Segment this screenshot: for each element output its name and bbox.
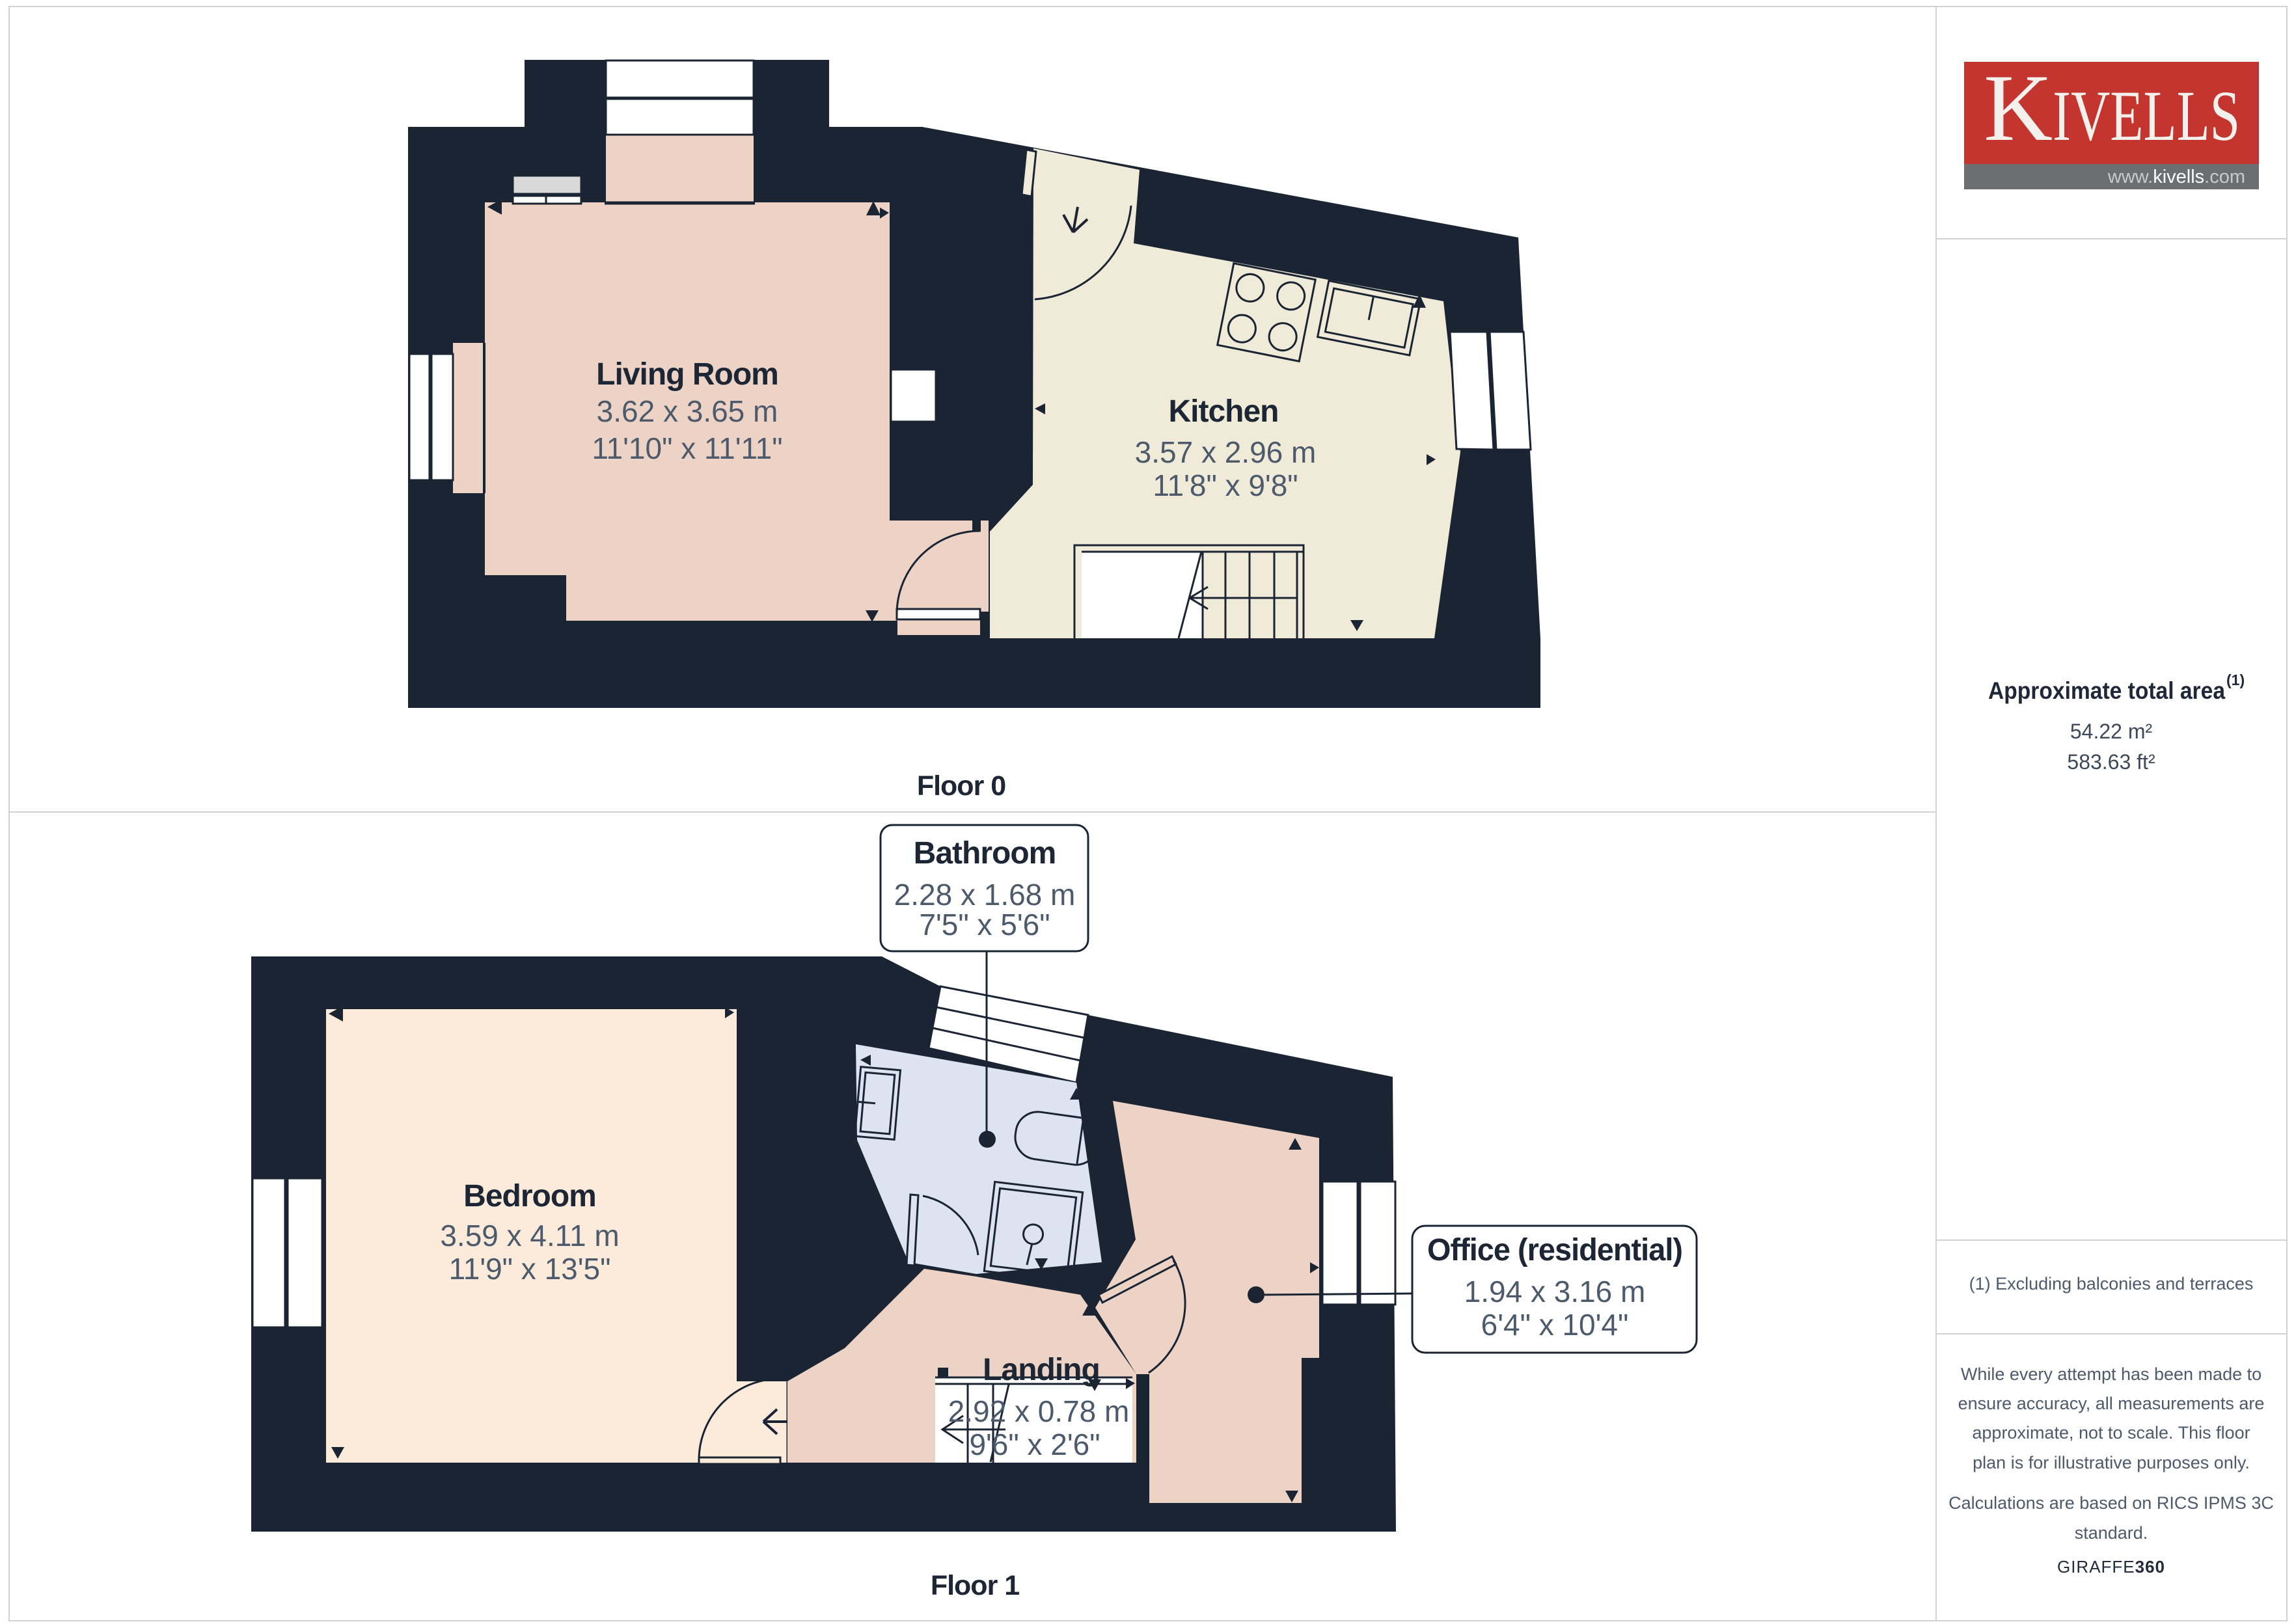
svg-text:11'10" x 11'11": 11'10" x 11'11" — [592, 431, 782, 465]
svg-text:Living Room: Living Room — [596, 357, 778, 392]
svg-text:(1): (1) — [2226, 671, 2245, 688]
svg-text:(1) Excluding balconies and te: (1) Excluding balconies and terraces — [1969, 1274, 2254, 1293]
svg-text:ensure accuracy, all measureme: ensure accuracy, all measurements are — [1958, 1394, 2265, 1413]
svg-text:2.28 x 1.68 m: 2.28 x 1.68 m — [894, 878, 1076, 912]
svg-text:9'6" x 2'6": 9'6" x 2'6" — [969, 1428, 1100, 1461]
svg-text:Landing: Landing — [983, 1353, 1100, 1387]
svg-text:www.kivells.com: www.kivells.com — [2107, 167, 2245, 187]
svg-text:54.22 m²: 54.22 m² — [2070, 720, 2153, 743]
svg-text:11'8" x 9'8": 11'8" x 9'8" — [1153, 468, 1298, 502]
svg-text:standard.: standard. — [2075, 1523, 2148, 1543]
svg-text:Bedroom: Bedroom — [463, 1179, 596, 1213]
svg-text:583.63 ft²: 583.63 ft² — [2067, 750, 2155, 774]
svg-text:GIRAFFE360: GIRAFFE360 — [2057, 1557, 2165, 1577]
svg-text:Office (residential): Office (residential) — [1427, 1233, 1682, 1267]
svg-text:plan is for illustrative purpo: plan is for illustrative purposes only. — [1973, 1453, 2250, 1472]
svg-text:6'4" x 10'4": 6'4" x 10'4" — [1481, 1308, 1629, 1342]
svg-text:While every attempt has been m: While every attempt has been made to — [1961, 1364, 2262, 1384]
svg-text:Approximate total area: Approximate total area — [1988, 677, 2225, 704]
svg-text:Kitchen: Kitchen — [1168, 394, 1278, 429]
svg-text:Floor 0: Floor 0 — [917, 770, 1005, 802]
svg-text:Floor 1: Floor 1 — [931, 1570, 1019, 1601]
svg-text:3.62 x 3.65 m: 3.62 x 3.65 m — [597, 394, 778, 428]
svg-text:Calculations are based on RICS: Calculations are based on RICS IPMS 3C — [1948, 1493, 2274, 1513]
svg-text:7'5" x 5'6": 7'5" x 5'6" — [919, 908, 1050, 941]
svg-text:3.59 x 4.11 m: 3.59 x 4.11 m — [440, 1219, 619, 1252]
svg-text:Bathroom: Bathroom — [914, 836, 1056, 871]
svg-text:approximate, not to scale. Thi: approximate, not to scale. This floor — [1972, 1423, 2250, 1442]
svg-text:1.94 x 3.16 m: 1.94 x 3.16 m — [1464, 1275, 1646, 1308]
svg-text:11'9" x 13'5": 11'9" x 13'5" — [449, 1252, 611, 1286]
svg-text:3.57 x 2.96 m: 3.57 x 2.96 m — [1135, 435, 1317, 469]
svg-text:2.92 x 0.78 m: 2.92 x 0.78 m — [948, 1394, 1130, 1428]
